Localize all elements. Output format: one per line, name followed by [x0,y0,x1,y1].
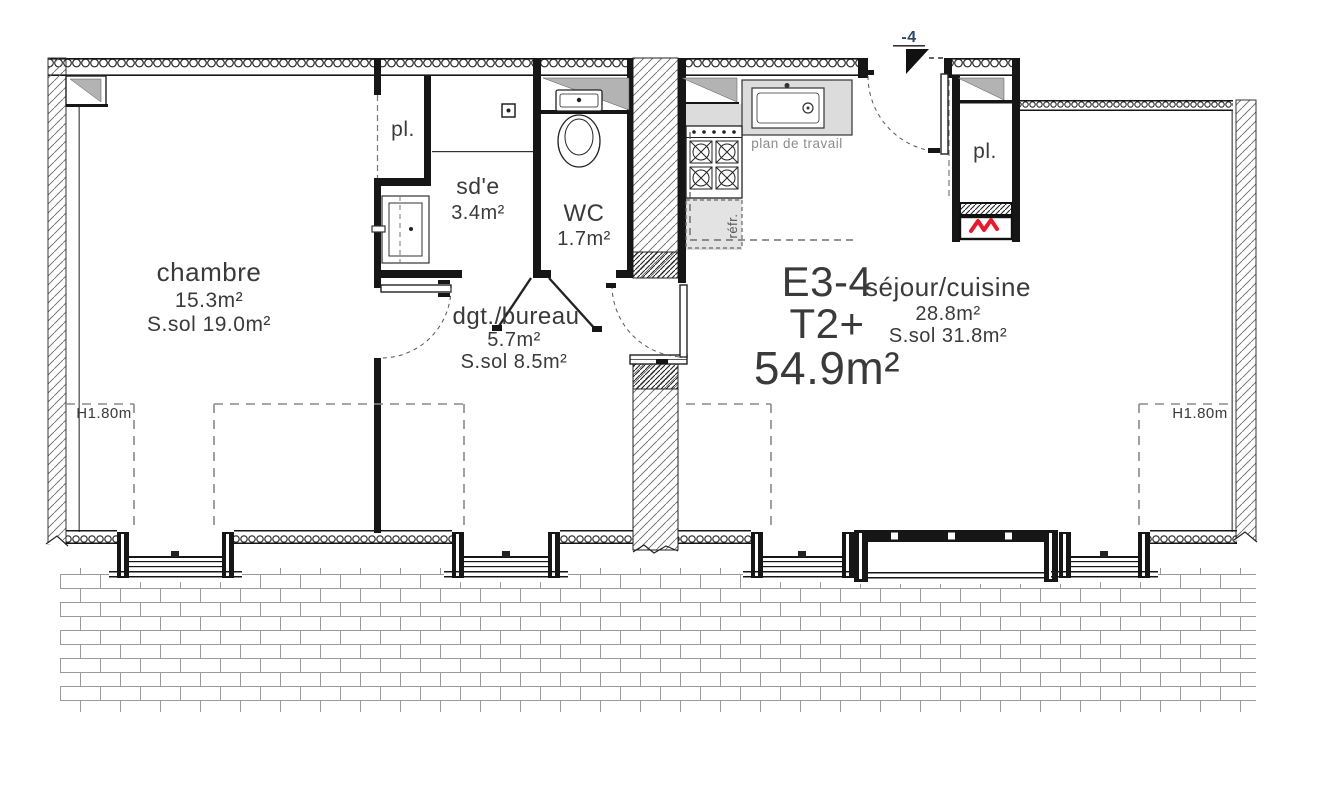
chambre-floor-area: S.sol 19.0m² [147,313,271,336]
wc-name: WC [564,200,605,227]
chambre-area: 15.3m² [175,289,243,312]
shower-edge [432,151,533,152]
unit-total-area: 54.9m² [754,342,900,394]
worktop-label: plan de travail [751,136,843,151]
floor-plan: -4 chambre 15.3m² S.sol 19.0m² pl. sd'e … [0,0,1341,800]
toilet-fixture [556,90,602,167]
sejour-area: 28.8m² [915,303,980,325]
shower-drain [502,104,515,117]
faucet-icon [372,226,385,232]
wc-area: 1.7m² [557,228,611,250]
sde-name: sd'e [456,173,499,199]
chambre-name: chambre [157,257,262,287]
sde-area: 3.4m² [451,202,505,224]
sejour-floor-area: S.sol 31.8m² [889,325,1007,347]
closet-left-label: pl. [391,118,415,141]
floor-plan-drawing: -4 chambre 15.3m² S.sol 19.0m² pl. sd'e … [0,0,1341,800]
dgt-floor-area: S.sol 8.5m² [461,351,568,373]
faucet-icon [785,83,790,88]
stove [686,126,742,198]
sejour-name: séjour/cuisine [865,272,1031,302]
kitchen-sink [742,80,852,135]
unit-code: E3-4 [782,258,873,305]
corner-duct-box [66,76,108,107]
height-label-left: H1.80m [76,405,132,422]
brick-paving [60,568,1256,712]
entry-level-label: -4 [901,29,916,46]
fridge-label: réfr. [725,214,740,239]
dgt-area: 5.7m² [487,329,541,351]
closet-right-label: pl. [973,140,997,163]
dgt-name: dgt./bureau [453,303,580,330]
height-label-right: H1.80m [1172,405,1228,422]
unit-type: T2+ [789,300,864,347]
